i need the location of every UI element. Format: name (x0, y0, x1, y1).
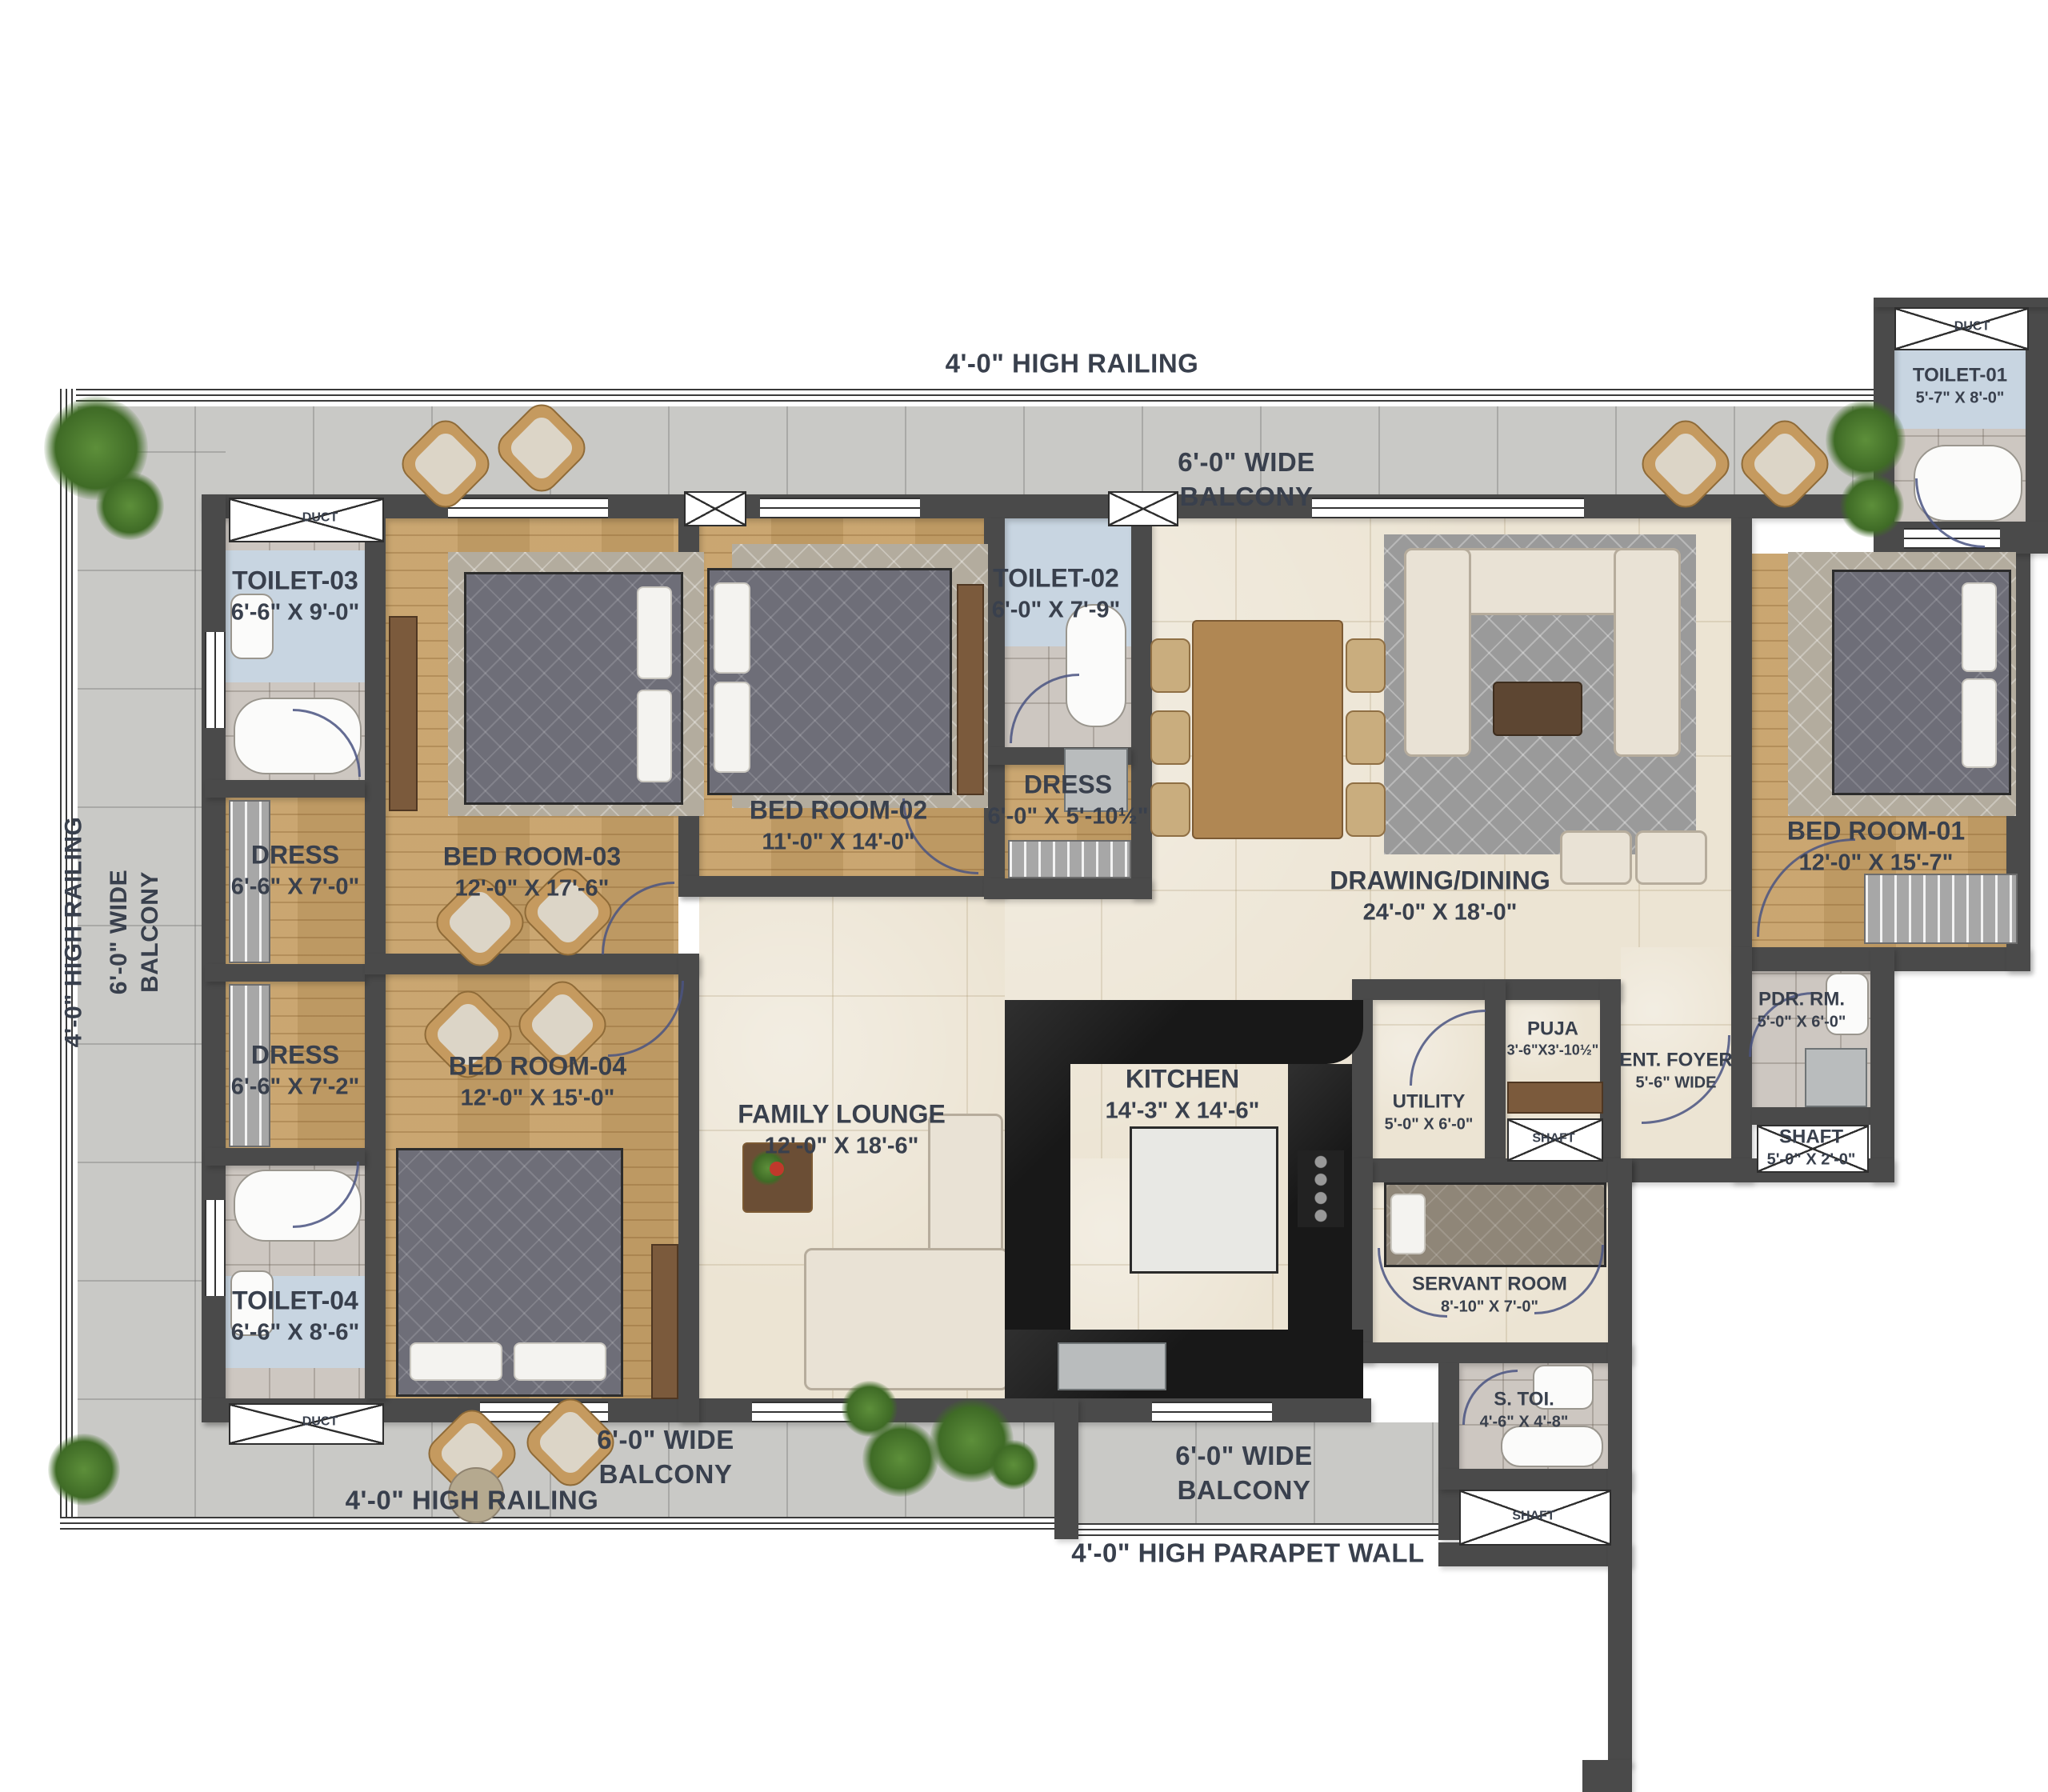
pillow (1962, 678, 1997, 768)
room-label-s-toi: S. TOI.4'-6" X 4'-8" (1480, 1386, 1569, 1432)
wall (1352, 1342, 1632, 1363)
pillow (1962, 582, 1997, 672)
pillow (714, 582, 750, 674)
wall (1608, 1158, 1632, 1766)
room-label-family-lounge: FAMILY LOUNGE12'-0" X 18'-6" (738, 1098, 946, 1161)
sliding-door (1312, 498, 1584, 518)
room-label-toilet-03: TOILET-036'-6" X 9'-0" (231, 564, 360, 627)
puja-cabinet (1507, 1082, 1603, 1114)
dining-chair (1150, 782, 1190, 837)
dining-chair (1346, 638, 1386, 693)
dining-chair (1150, 638, 1190, 693)
room-label-toilet-01: TOILET-015'-7" X 8'-0" (1913, 362, 2007, 408)
pillow (637, 690, 672, 782)
wall (984, 878, 1152, 899)
room-label-pdr-rm: PDR. RM.5'-0" X 6'-0" (1758, 986, 1846, 1032)
dining-chair (1150, 710, 1190, 765)
railing-label-left: 4'-0" HIGH RAILING (58, 817, 90, 1048)
balcony-label-top: 6'-0" WIDEBALCONY (1178, 446, 1315, 514)
railing-label-bottom-left: 4'-0" HIGH RAILING (346, 1484, 599, 1518)
sofa-sectional-left (1404, 548, 1471, 757)
pillow (410, 1342, 502, 1381)
room-label-puja: PUJA3'-6"X3'-10½" (1507, 1017, 1599, 1061)
duct-label-top-right: DUCT (1954, 319, 1990, 336)
wall (1438, 1542, 1632, 1566)
room-label-ent-foyer: ENT. FOYER5'-6" WIDE (1619, 1047, 1732, 1093)
room-label-utility: UTILITY5'-0" X 6'-0" (1385, 1089, 1474, 1134)
balcony-door (1152, 1402, 1272, 1422)
plant (989, 1440, 1038, 1490)
wall (205, 780, 365, 798)
pillow (637, 586, 672, 679)
railing-top (60, 389, 1876, 405)
wall (1752, 1107, 1870, 1125)
railing-label-top: 4'-0" HIGH RAILING (946, 347, 1199, 382)
kitchen-island (1130, 1126, 1278, 1274)
shaft-label-bottom: SHAFT (1512, 1509, 1554, 1526)
flower (770, 1162, 784, 1176)
wall (1054, 1398, 1078, 1539)
stove (1298, 1150, 1344, 1227)
wall (1131, 518, 1152, 899)
sofa-sectional-right (1614, 548, 1681, 757)
wall (1352, 1158, 1632, 1182)
dining-table (1192, 620, 1343, 839)
wall (1731, 947, 1752, 1182)
balcony-label-bottom-left: 6'-0" WIDEBALCONY (597, 1423, 734, 1492)
dining-chair (1346, 710, 1386, 765)
wall (1438, 1469, 1632, 1490)
room-label-toilet-04: TOILET-046'-6" X 8'-6" (231, 1284, 360, 1347)
plant (96, 472, 164, 540)
wardrobe-dress-mid (1008, 840, 1131, 878)
balcony-label-bottom-right: 6'-0" WIDEBALCONY (1175, 1439, 1313, 1508)
plant (1826, 400, 1906, 480)
parapet-label: 4'-0" HIGH PARAPET WALL (1071, 1537, 1424, 1571)
wall (2026, 298, 2048, 526)
plant (48, 1434, 120, 1506)
balcony-floor-top (78, 406, 1874, 494)
wall (205, 964, 365, 982)
pillow (714, 682, 750, 773)
kitchen-counter-left (1005, 1000, 1070, 1376)
wall (678, 876, 1005, 897)
room-label-dress-mid: DRESS6'-0" X 5'-10½" (988, 768, 1149, 831)
wall (1438, 1363, 1459, 1540)
wall (1874, 298, 2048, 307)
duct-label-top-left: DUCT (302, 510, 338, 527)
shaft-label-puja: SHAFT (1532, 1131, 1574, 1148)
kitchen-sink (1058, 1342, 1166, 1390)
duct-label-bottom-left: DUCT (302, 1414, 338, 1431)
accent-chair (1635, 830, 1707, 885)
wardrobe (389, 616, 418, 811)
wall (365, 954, 699, 974)
room-label-dress-1: DRESS6'-6" X 7'-0" (231, 838, 360, 902)
room-label-kitchen: KITCHEN14'-3" X 14'-6" (1106, 1062, 1260, 1126)
room-label-bedroom-01: BED ROOM-0112'-0" X 15'-7" (1787, 814, 1965, 878)
railing-bottom-left (60, 1517, 1054, 1533)
pillow (1390, 1194, 1426, 1254)
wall (1485, 979, 1506, 1158)
plant (842, 1381, 898, 1437)
wardrobe-bedroom-01 (1864, 874, 2018, 944)
pillow (514, 1342, 606, 1381)
room-label-servant-room: SERVANT ROOM8'-10" X 7'-0" (1412, 1271, 1567, 1317)
accent-chair (1560, 830, 1632, 885)
balcony-label-left: 6'-0" WIDEBALCONY (103, 870, 166, 994)
wardrobe (957, 584, 984, 795)
lounge-sofa-seat (804, 1248, 1009, 1390)
window (205, 1200, 226, 1296)
floor-plan: TOILET-036'-6" X 9'-0" DRESS6'-6" X 7'-0… (0, 0, 2048, 1792)
dining-chair (1346, 782, 1386, 837)
window-x-box (684, 491, 746, 526)
plant (1840, 474, 1904, 538)
window (760, 498, 920, 518)
wardrobe (651, 1244, 678, 1399)
wall (1582, 1760, 1632, 1792)
washbasin (1805, 1048, 1867, 1107)
room-label-shaft-right: SHAFT5'-0" X 2'-0" (1767, 1124, 1856, 1170)
wall (678, 954, 699, 1422)
room-label-bedroom-03: BED ROOM-0312'-0" X 17'-6" (443, 840, 621, 903)
room-label-dress-2: DRESS6'-6" X 7'-2" (231, 1038, 360, 1102)
room-label-bedroom-04: BED ROOM-0412'-0" X 15'-0" (449, 1050, 626, 1113)
wall (1731, 518, 1752, 947)
window-x-box (1108, 491, 1178, 526)
window (205, 632, 226, 728)
room-label-bedroom-02: BED ROOM-0211'-0" X 14'-0" (750, 794, 927, 857)
room-label-drawing-dining: DRAWING/DINING24'-0" X 18'-0" (1330, 864, 1550, 927)
coffee-table (1493, 682, 1582, 736)
room-label-toilet-02: TOILET-026'-0" X 7'-9" (992, 562, 1121, 625)
window (448, 498, 608, 518)
wall (1870, 947, 1894, 1182)
